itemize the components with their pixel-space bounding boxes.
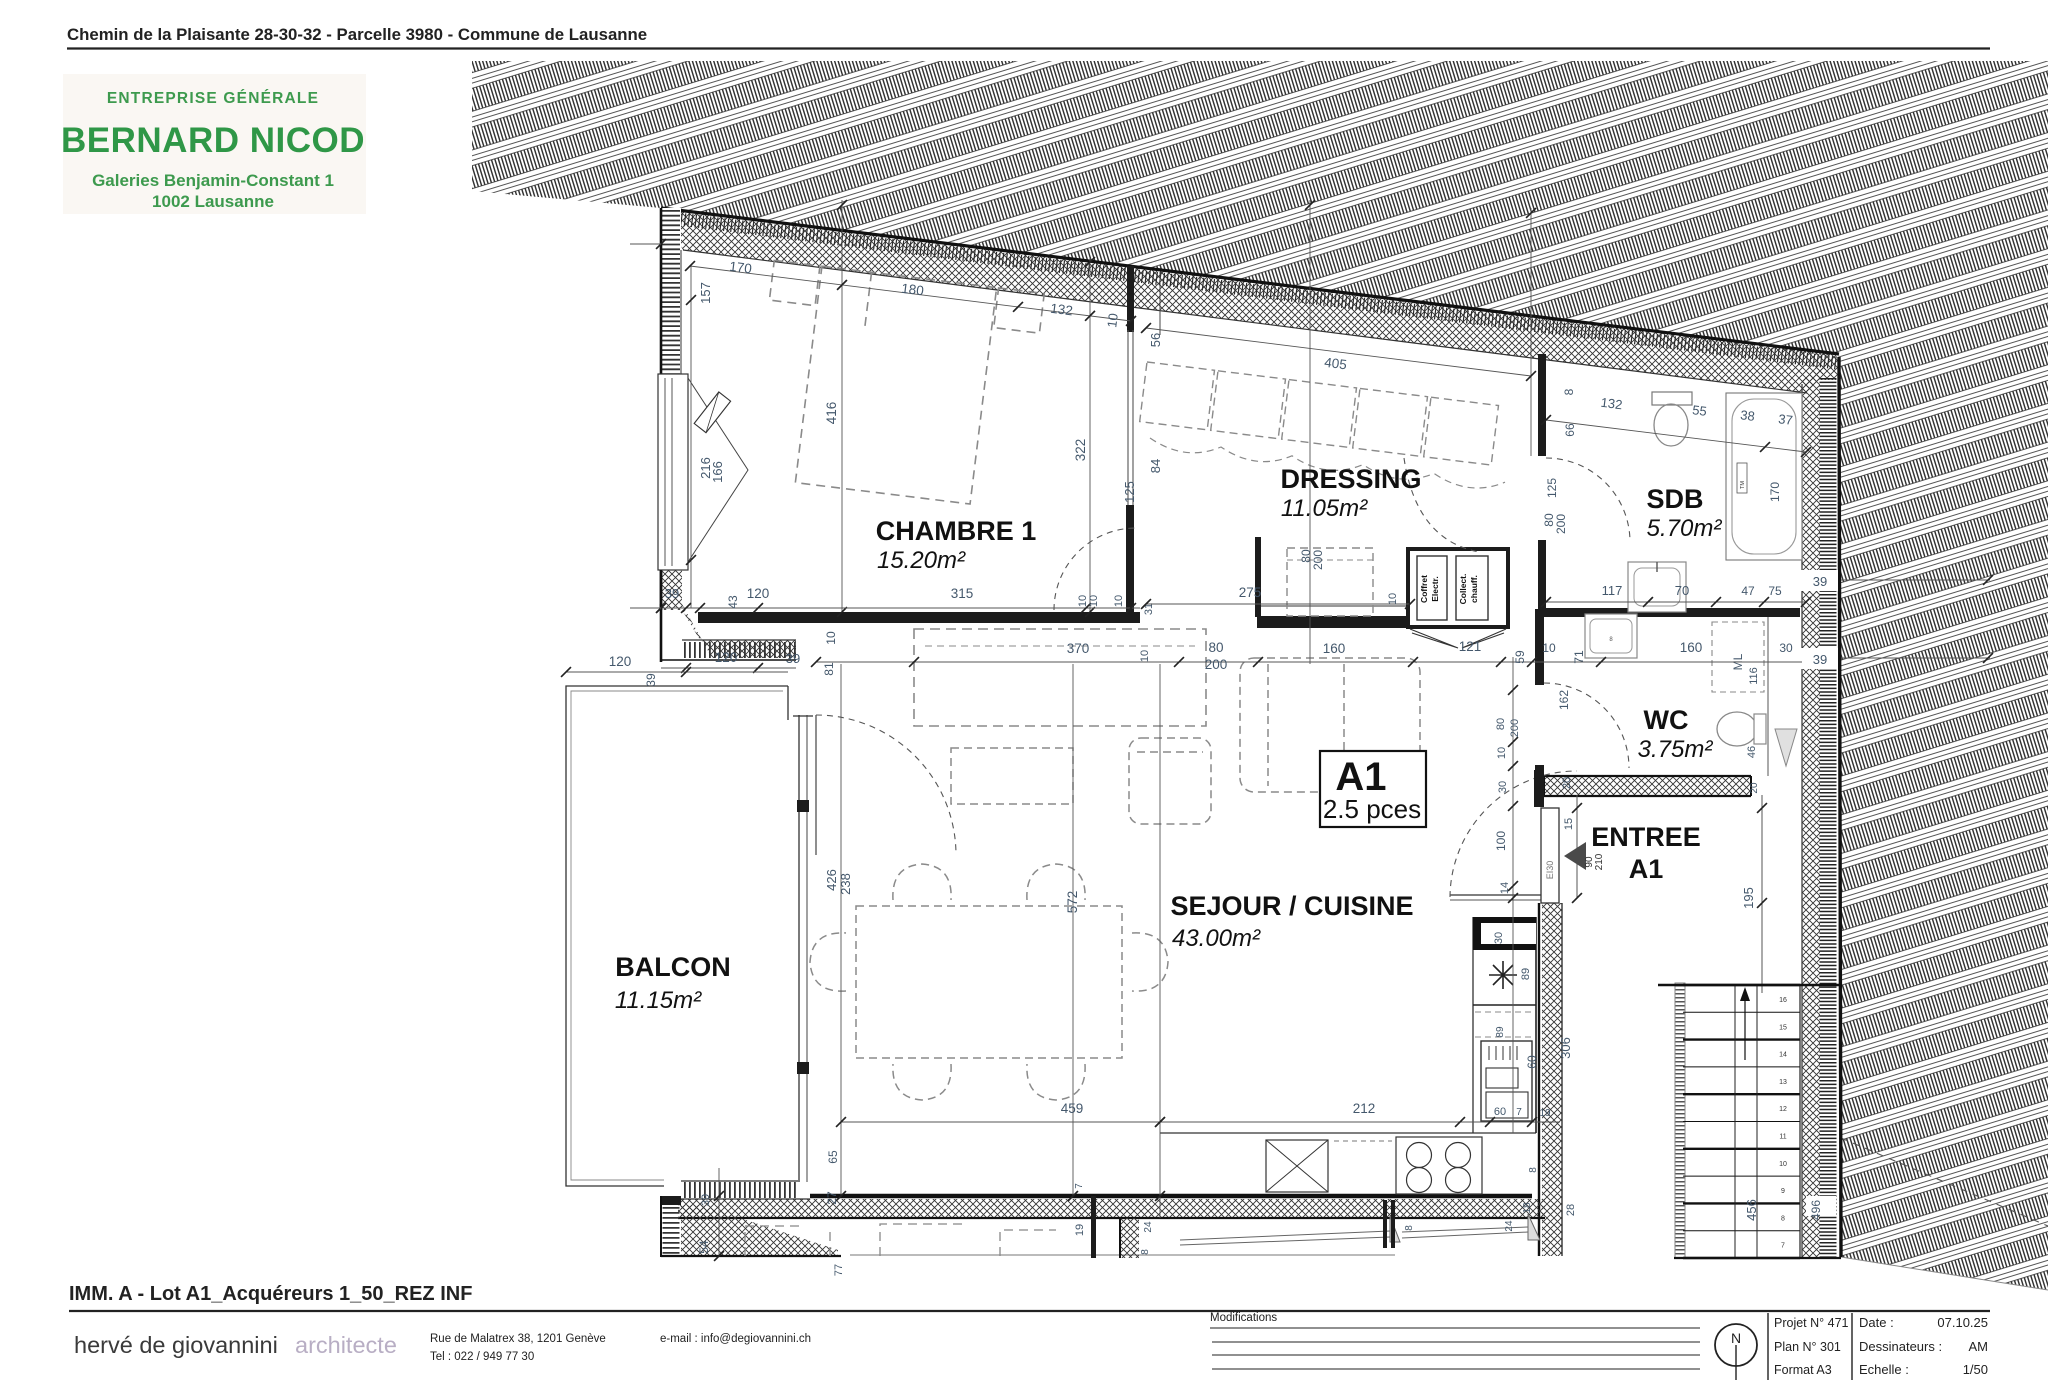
svg-text:8: 8: [1562, 388, 1576, 395]
svg-text:60: 60: [1494, 1106, 1506, 1118]
svg-text:ENTREPRISE GÉNÉRALE: ENTREPRISE GÉNÉRALE: [107, 90, 319, 107]
svg-text:8: 8: [1404, 1225, 1415, 1231]
svg-text:200: 200: [1509, 719, 1521, 737]
svg-text:10: 10: [1113, 595, 1125, 607]
svg-text:59: 59: [1513, 650, 1527, 664]
svg-text:132: 132: [1600, 395, 1623, 413]
svg-text:Rue de Malatrex 38, 1201 Genèv: Rue de Malatrex 38, 1201 Genève: [430, 1333, 606, 1345]
svg-text:10: 10: [824, 631, 838, 645]
svg-text:11.05m²: 11.05m²: [1281, 495, 1368, 522]
svg-text:10: 10: [1104, 312, 1121, 328]
svg-text:13: 13: [1779, 1079, 1787, 1086]
svg-text:Electr.: Electr.: [1430, 576, 1440, 602]
svg-text:24: 24: [1143, 1221, 1154, 1233]
svg-text:70: 70: [1675, 583, 1689, 598]
svg-text:WC: WC: [1644, 705, 1689, 735]
svg-text:39: 39: [644, 673, 658, 687]
svg-text:125: 125: [1545, 478, 1559, 498]
svg-text:1/50: 1/50: [1963, 1362, 1988, 1377]
svg-text:Format A3: Format A3: [1774, 1363, 1832, 1377]
svg-text:30: 30: [1497, 781, 1509, 793]
svg-text:117: 117: [1602, 583, 1623, 598]
svg-text:46: 46: [1746, 746, 1758, 758]
svg-text:100: 100: [1494, 831, 1508, 851]
svg-text:N: N: [1731, 1330, 1741, 1346]
svg-text:A1: A1: [1629, 854, 1664, 884]
svg-text:157: 157: [698, 282, 713, 304]
svg-text:120: 120: [609, 654, 632, 669]
svg-text:132: 132: [1049, 301, 1073, 319]
svg-text:210: 210: [1594, 853, 1605, 870]
svg-text:195: 195: [1741, 887, 1756, 909]
svg-text:3.75m²: 3.75m²: [1638, 736, 1714, 763]
svg-text:Modifications: Modifications: [1210, 1312, 1277, 1324]
svg-text:200: 200: [1205, 657, 1228, 672]
svg-text:8: 8: [1528, 1167, 1539, 1173]
svg-text:120: 120: [747, 586, 770, 601]
svg-text:315: 315: [951, 586, 974, 601]
svg-text:37: 37: [1777, 411, 1793, 428]
svg-text:496: 496: [1809, 1200, 1823, 1220]
svg-text:306: 306: [1558, 1037, 1573, 1059]
svg-text:170: 170: [1768, 482, 1782, 502]
svg-text:architecte: architecte: [295, 1332, 397, 1358]
svg-text:CHAMBRE 1: CHAMBRE 1: [876, 516, 1037, 546]
svg-text:Galeries Benjamin-Constant 1: Galeries Benjamin-Constant 1: [92, 171, 334, 190]
svg-text:39: 39: [1813, 574, 1827, 589]
svg-text:1002 Lausanne: 1002 Lausanne: [152, 192, 274, 211]
svg-text:80: 80: [1208, 640, 1223, 655]
svg-text:65: 65: [826, 1150, 840, 1164]
svg-text:07.10.25: 07.10.25: [1937, 1315, 1988, 1330]
svg-text:Coffret: Coffret: [1419, 575, 1429, 603]
svg-text:11.15m²: 11.15m²: [615, 987, 702, 1014]
svg-text:e-mail : info@degiovannini.ch: e-mail : info@degiovannini.ch: [660, 1333, 811, 1345]
svg-text:10: 10: [1496, 747, 1508, 759]
svg-text:75: 75: [1768, 584, 1782, 598]
svg-text:66: 66: [1563, 423, 1577, 437]
svg-text:38: 38: [1739, 407, 1755, 424]
svg-text:60: 60: [1525, 1055, 1539, 1069]
svg-text:28: 28: [1565, 1204, 1577, 1216]
svg-text:572: 572: [1065, 891, 1080, 914]
svg-text:77: 77: [833, 1264, 845, 1276]
svg-text:170: 170: [728, 259, 752, 277]
svg-text:30: 30: [1779, 641, 1793, 655]
svg-text:212: 212: [1353, 1101, 1376, 1116]
svg-text:20: 20: [1561, 777, 1573, 789]
svg-text:56: 56: [1148, 333, 1163, 347]
svg-text:275: 275: [1239, 585, 1262, 600]
svg-text:8: 8: [1781, 1215, 1785, 1222]
svg-text:9: 9: [1781, 1188, 1785, 1195]
svg-text:20: 20: [1749, 782, 1760, 794]
svg-text:16: 16: [1779, 997, 1787, 1004]
svg-text:14: 14: [1499, 882, 1511, 894]
svg-text:BERNARD NICOD: BERNARD NICOD: [61, 121, 365, 160]
svg-text:47: 47: [1741, 584, 1755, 598]
svg-text:24: 24: [1504, 1220, 1515, 1232]
svg-text:370: 370: [1067, 641, 1090, 656]
svg-text:7: 7: [1074, 1183, 1085, 1189]
svg-text:15: 15: [1779, 1024, 1787, 1031]
svg-text:125: 125: [1122, 481, 1137, 503]
svg-text:84: 84: [1148, 459, 1163, 473]
svg-text:80: 80: [1495, 718, 1507, 730]
svg-text:A1: A1: [1335, 755, 1386, 799]
svg-text:116: 116: [1748, 667, 1760, 685]
svg-text:5.70m²: 5.70m²: [1647, 515, 1723, 542]
svg-text:Chemin de la Plaisante 28-30-3: Chemin de la Plaisante 28-30-32 - Parcel…: [67, 25, 647, 44]
svg-text:BALCON: BALCON: [615, 952, 731, 982]
svg-text:15.20m²: 15.20m²: [877, 547, 966, 574]
svg-text:238: 238: [838, 873, 853, 895]
svg-text:Projet N° 471: Projet N° 471: [1774, 1316, 1849, 1330]
svg-text:322: 322: [1073, 439, 1088, 462]
svg-text:IMM. A - Lot A1_Acquéreurs 1_5: IMM. A - Lot A1_Acquéreurs 1_50_REZ INF: [69, 1283, 472, 1305]
svg-text:chauff.: chauff.: [1469, 575, 1479, 603]
svg-text:SDB: SDB: [1646, 484, 1703, 514]
svg-text:10: 10: [1088, 595, 1100, 607]
svg-text:10: 10: [1542, 641, 1556, 655]
svg-text:2.5 pces: 2.5 pces: [1323, 794, 1421, 824]
svg-text:89: 89: [1520, 968, 1532, 980]
svg-text:55: 55: [1691, 402, 1707, 419]
svg-text:10: 10: [1139, 650, 1151, 662]
svg-text:15: 15: [1563, 818, 1575, 830]
svg-text:456: 456: [1744, 1199, 1759, 1221]
svg-text:416: 416: [824, 402, 839, 425]
svg-text:160: 160: [1323, 641, 1346, 656]
svg-text:166: 166: [710, 461, 725, 483]
svg-text:EI30: EI30: [1545, 861, 1555, 880]
svg-text:10: 10: [1387, 593, 1399, 605]
svg-text:120: 120: [715, 650, 738, 665]
svg-text:200: 200: [1554, 514, 1568, 534]
svg-text:11: 11: [1779, 1134, 1786, 1141]
svg-text:405: 405: [1323, 355, 1347, 373]
svg-text:200: 200: [1311, 550, 1325, 570]
svg-text:Plan N° 301: Plan N° 301: [1774, 1340, 1841, 1354]
svg-text:54: 54: [697, 1240, 711, 1254]
svg-text:Date :: Date :: [1859, 1315, 1894, 1330]
svg-text:39: 39: [665, 586, 679, 601]
svg-text:7: 7: [1781, 1243, 1785, 1250]
svg-text:12: 12: [1779, 1106, 1787, 1113]
svg-text:39: 39: [786, 651, 800, 666]
svg-text:Collect.: Collect.: [1458, 574, 1468, 605]
svg-text:89: 89: [1495, 1026, 1506, 1038]
svg-text:180: 180: [900, 281, 924, 299]
svg-text:426: 426: [824, 869, 839, 891]
svg-text:19: 19: [1539, 1108, 1551, 1119]
svg-text:30: 30: [1493, 932, 1505, 944]
svg-text:AM: AM: [1969, 1339, 1989, 1354]
svg-text:7: 7: [1516, 1107, 1522, 1118]
svg-text:27: 27: [825, 1191, 839, 1205]
svg-text:121: 121: [1459, 639, 1482, 654]
svg-text:43.00m²: 43.00m²: [1172, 925, 1261, 952]
svg-text:Echelle :: Echelle :: [1859, 1362, 1909, 1377]
svg-text:459: 459: [1061, 1101, 1084, 1116]
svg-text:39: 39: [700, 1194, 712, 1206]
svg-text:14: 14: [1779, 1052, 1787, 1059]
svg-text:TM: TM: [1740, 481, 1746, 489]
svg-text:Dessinateurs :: Dessinateurs :: [1859, 1339, 1942, 1354]
svg-text:39: 39: [1813, 652, 1827, 667]
svg-text:81: 81: [822, 662, 836, 676]
svg-text:hervé de giovannini: hervé de giovannini: [74, 1332, 278, 1358]
svg-text:10: 10: [1779, 1161, 1787, 1168]
svg-text:71: 71: [1572, 650, 1586, 664]
svg-text:DRESSING: DRESSING: [1280, 464, 1421, 494]
svg-text:162: 162: [1557, 690, 1571, 710]
svg-text:19: 19: [1074, 1224, 1086, 1236]
svg-text:18: 18: [1522, 1202, 1533, 1214]
svg-text:43: 43: [726, 595, 740, 609]
svg-text:8: 8: [1140, 1249, 1151, 1255]
svg-text:Tel : 022 / 949 77 30: Tel : 022 / 949 77 30: [430, 1351, 534, 1363]
svg-text:160: 160: [1680, 640, 1703, 655]
svg-text:SEJOUR / CUISINE: SEJOUR / CUISINE: [1170, 891, 1413, 921]
svg-text:ENTREE: ENTREE: [1591, 822, 1701, 852]
